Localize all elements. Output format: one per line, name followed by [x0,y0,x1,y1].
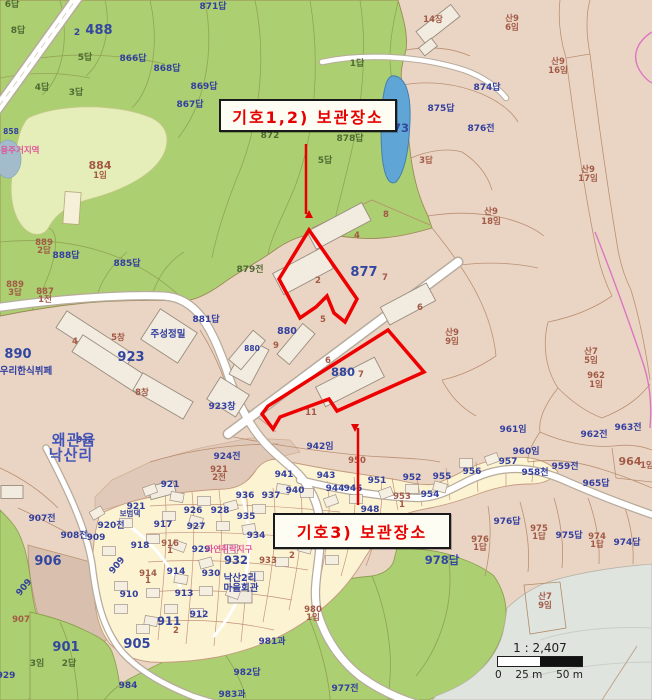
parcel-label: 927 [187,522,206,532]
parcel-label: 963전 [614,421,641,433]
parcel-label: 869답 [190,80,218,92]
parcel-label: 2 [74,28,80,38]
parcel-label: 3임 [30,657,45,669]
parcel-label: 1임 [589,379,603,390]
parcel-label: 1 [399,500,405,510]
parcel-label: 936 [236,491,255,501]
parcel-label: 981과 [258,635,286,647]
parcel-label: 6임 [505,22,519,33]
annotation-box-storage-1-2: 기호1,2) 보관장소 [219,99,397,132]
parcel-label: 우리한식뷔페 [0,365,52,377]
parcel-label: 5창 [111,332,125,343]
parcel-label: 880 [244,344,260,353]
parcel-label: 3답 [69,86,84,98]
parcel-label: 879전 [236,263,263,275]
parcel-label: 940 [286,486,305,496]
parcel-label: 961임 [499,423,526,435]
parcel-label: 913 [175,589,194,599]
parcel-label: 488 [85,23,112,38]
parcel-label: 산9 [484,206,498,217]
parcel-label: 868답 [153,62,181,74]
parcel-label: 871답 [199,0,227,12]
parcel-label: 937 [262,491,281,501]
parcel-label: 982답 [233,666,261,678]
parcel-label: 964 [619,455,642,468]
scale-tick-0: 0 [495,669,502,681]
parcel-label: 14장 [423,14,443,25]
parcel-label: 918 [131,541,150,551]
parcel-label: 8 [383,210,389,220]
parcel-label: 930 [202,569,221,579]
parcel-label: 890 [4,347,31,362]
parcel-label: 1임 [640,460,652,471]
parcel-label: 866답 [119,52,147,64]
parcel-label: 872 [261,131,280,141]
parcel-label: 3답 [8,287,22,298]
parcel-label: 877 [350,265,377,280]
parcel-label: 2답 [62,657,77,669]
annotation-box-storage-3: 기호3) 보관장소 [273,513,451,549]
parcel-label: 888답 [52,249,80,261]
parcel-label: 1답 [350,57,365,69]
parcel-label: 876전 [467,122,494,134]
parcel-label: 959전 [551,460,578,472]
parcel-label: 낙산리 [49,446,93,464]
parcel-label: 874답 [473,81,501,93]
parcel-label: 914 [167,567,186,577]
parcel-label: 858 [3,127,19,136]
parcel-label: 4 [354,231,360,241]
parcel-label: 2 [173,626,179,636]
scale-bar-first-half [498,657,540,666]
parcel-label: 18임 [481,216,501,227]
parcel-label: 912 [190,610,209,620]
small-parcel-in-forest [63,191,81,224]
parcel-label: 976답 [493,515,521,527]
parcel-label: 875답 [427,102,455,114]
scale-tick-50: 50 m [556,669,583,681]
parcel-label: 16임 [548,65,568,76]
parcel-label: 885답 [113,257,141,269]
parcel-label: 1전 [38,294,52,305]
parcel-label: 923창 [208,400,236,412]
parcel-label: 908전 [60,529,87,541]
parcel-label: 5 [320,315,326,325]
parcel-label: 951 [368,476,387,486]
parcel-label: 1답 [532,531,546,542]
scale-bar-second-half [540,657,582,666]
parcel-label: 2 [289,551,295,561]
parcel-label: 945 [344,484,363,494]
parcel-label: 933 [259,556,277,566]
parcel-label: 978답 [425,553,460,567]
annotation-box-storage-1-2-label: 기호1,2) 보관장소 [232,104,384,128]
parcel-label: 9임 [538,600,552,611]
parcel-label: 7 [382,273,388,283]
parcel-label: 8창 [135,387,149,398]
parcel-label: 1답 [590,539,604,550]
parcel-label: 941 [275,470,294,480]
scale-ratio: 1 : 2,407 [497,641,583,655]
parcel-label: 932 [224,553,248,567]
parcel-label: 4답 [35,81,50,93]
parcel-label: 924전 [213,450,240,462]
parcel-label: 974답 [613,536,641,548]
parcel-label: 5답 [318,154,333,166]
map-canvas: 6답8답2488866답868답871답869답867답5답4답3답858전용주… [0,0,652,700]
parcel-label: 956 [463,467,482,477]
parcel-label: 907 [12,615,30,625]
parcel-label: 9임 [445,336,459,347]
parcel-label: 6 [417,303,423,313]
parcel-label: 1 [167,546,173,556]
parcel-label: 928 [211,506,230,516]
parcel-label: 11 [305,408,317,418]
parcel-label: 943 [317,471,336,481]
parcel-label: 8답 [11,24,26,36]
parcel-label: 2 [315,276,321,286]
parcel-label: 867답 [176,98,204,110]
parcel-label: 보범댁 [120,508,141,518]
parcel-label: 952 [403,473,422,483]
parcel-label: 935 [237,512,256,522]
parcel-label: 965답 [582,477,610,489]
parcel-label: 주성정밀 [151,328,186,340]
parcel-label: 901 [52,640,79,655]
parcel-label: 983과 [218,688,246,700]
parcel-label: 1임 [306,612,320,623]
parcel-label: 926 [184,506,203,516]
parcel-label: 977전 [331,682,358,694]
scale-bar: 1 : 2,407 0 25 m 50 m [497,641,583,681]
parcel-label: 6 [325,356,331,366]
parcel-label: 880 [331,365,355,379]
parcel-label: 923 [117,350,144,365]
parcel-label: 880 [277,326,297,337]
parcel-label: 934 [247,531,266,541]
scale-tick-25: 25 m [515,669,542,681]
parcel-label: 954 [421,490,440,500]
parcel-label: 942임 [306,440,333,452]
parcel-label: 929 [0,671,15,681]
parcel-label: 881답 [192,313,220,325]
parcel-label: 905 [123,637,150,652]
parcel-label: 1임 [93,170,107,181]
parcel-label: 975답 [555,529,583,541]
parcel-label: 906 [34,554,61,569]
parcel-label: 958천 [521,467,548,478]
parcel-label: 984 [119,681,138,691]
parcel-label: 7 [358,370,364,380]
parcel-label: 17임 [578,173,598,184]
parcel-label: 9 [273,341,279,351]
parcel-label: 3답 [419,155,433,166]
parcel-label: 909 [87,533,106,543]
annotation-box-storage-3-label: 기호3) 보관장소 [297,519,427,543]
parcel-label: 2답 [37,245,51,256]
parcel-label: 957 [499,457,518,467]
parcel-label: 6답 [5,0,20,10]
parcel-label: 960임 [512,445,539,457]
parcel-label: 955 [433,472,452,482]
parcel-label: 907전 [28,512,55,524]
parcel-label: 921 [161,480,180,490]
parcel-label: 917 [154,520,173,530]
scale-bar-graphic [497,656,583,667]
parcel-label: 5임 [584,355,598,366]
parcel-label: 962전 [580,428,607,440]
scale-tick-labels: 0 25 m 50 m [497,669,583,681]
parcel-label: 마을회관 [224,582,259,594]
parcel-label: 878답 [336,132,364,144]
parcel-label: 2전 [212,472,226,483]
parcel-label: 1 [145,576,151,586]
parcel-label: 4 [72,337,78,347]
parcel-label: 1답 [473,542,487,553]
parcel-label: 910 [120,590,139,600]
parcel-label: 944 [326,484,345,494]
parcel-label: 5답 [78,51,93,63]
parcel-label: 920전 [97,519,124,531]
parcel-label: 전용주거지역 [0,145,39,156]
